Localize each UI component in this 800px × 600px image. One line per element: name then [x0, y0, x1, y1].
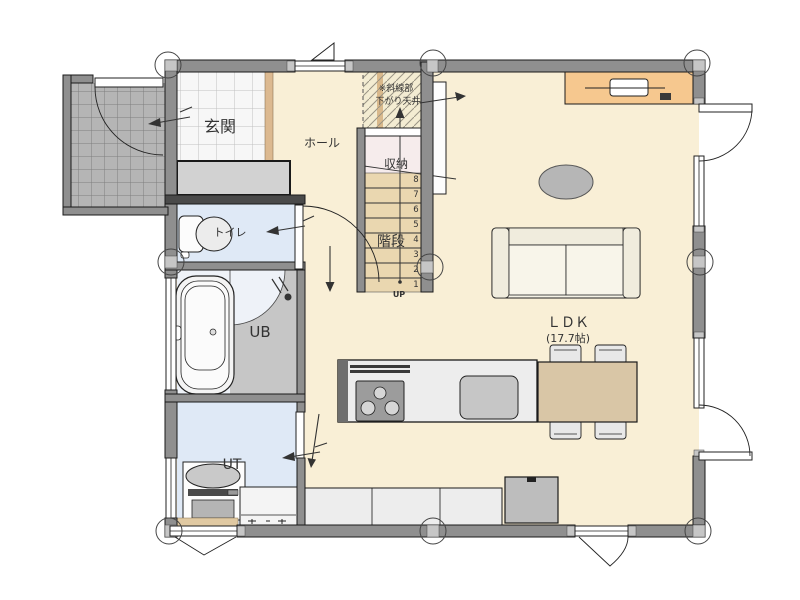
wall-stairs-left	[357, 128, 365, 292]
door-right-lower-leaf	[699, 452, 752, 460]
counter-basin	[610, 79, 648, 96]
room-label-utility: UT	[223, 457, 242, 473]
agarikamachi-step	[265, 72, 273, 162]
floor-plan-drawing: 玄関 ホール トイレ UB UT 階段 収納 ＬＤＫ (17.7帖) ※斜線部 …	[0, 0, 800, 600]
porch-tile-grid	[71, 83, 167, 207]
sofa-cushion	[509, 245, 566, 295]
room-label-stairs: 階段	[377, 234, 405, 250]
wall-top-right	[345, 60, 705, 72]
room-label-bathroom: UB	[249, 323, 270, 341]
room-label-hall: ホール	[304, 136, 340, 150]
chair	[595, 345, 626, 364]
wall-toilet-bath	[165, 262, 305, 270]
wall-left-1	[165, 60, 177, 278]
bathtub-drain	[210, 329, 216, 335]
dining-table	[538, 362, 637, 422]
note-lowered-ceiling-1: ※斜線部	[379, 82, 414, 94]
wall-bath-utility	[165, 394, 305, 402]
wall-top-left	[165, 60, 295, 72]
note-lowered-ceiling-2: 下がり天井	[375, 95, 420, 107]
wall-right-2	[693, 226, 705, 338]
kitchen-counter-end-panel	[338, 360, 348, 422]
equipment-box	[505, 477, 558, 523]
sofa-arm-left	[492, 228, 509, 298]
bottom-cabinets	[305, 488, 502, 525]
stair-step-number: 6	[413, 205, 418, 215]
room-label-ldk: ＬＤＫ	[547, 315, 589, 331]
porch-wall-bottom	[63, 207, 168, 215]
chair	[550, 420, 581, 439]
window-utility-casement-mark	[175, 537, 236, 555]
wall-utility-right-2	[297, 458, 305, 525]
wall-bottom-2	[237, 525, 575, 537]
kitchen-counter	[338, 360, 537, 422]
chair	[550, 345, 581, 364]
kitchen-rail-2	[350, 370, 410, 373]
utility-door-leaf	[296, 412, 304, 458]
sofa-arm-right	[623, 228, 640, 298]
stair-step-number: 8	[413, 175, 418, 185]
washing-machine	[240, 487, 297, 527]
sofa-back	[509, 228, 623, 245]
stairs-up-label: UP	[393, 290, 405, 299]
stair-up-start-dot	[398, 280, 402, 284]
toilet-door-leaf	[295, 205, 303, 269]
sofa	[492, 228, 640, 298]
door-right-upper-swing	[699, 108, 752, 161]
porch-wall-left	[63, 75, 71, 215]
window-top-casement-mark	[312, 43, 334, 60]
door-right-upper-leaf	[699, 104, 752, 112]
stair-step-number: 3	[413, 250, 418, 260]
stair-step-number: 4	[413, 235, 418, 245]
stove	[356, 381, 404, 421]
corner-sink-counter	[565, 72, 693, 104]
wall-stairs-right	[421, 62, 433, 292]
stair-step-number: 7	[413, 190, 418, 200]
door-right-lower-swing	[699, 405, 750, 456]
stair-step-number: 1	[413, 280, 418, 290]
kitchen-sink	[460, 376, 518, 419]
shoe-cabinet	[177, 161, 290, 195]
wall-genkan-toilet	[165, 195, 305, 204]
entrance-door-leaf	[95, 78, 163, 87]
wall-bath-right	[297, 270, 305, 394]
window-ldk-swing-mark	[579, 537, 628, 566]
bathtub	[174, 276, 234, 394]
counter-faucet	[660, 93, 671, 100]
room-label-genkan: 玄関	[204, 117, 236, 136]
wall-utility-right-1	[297, 402, 305, 412]
stair-step-number: 2	[413, 265, 418, 275]
vanity-cabinet	[192, 500, 234, 518]
floor-plan: 玄関 ホール トイレ UB UT 階段 収納 ＬＤＫ (17.7帖) ※斜線部 …	[0, 0, 800, 600]
sofa-cushion	[566, 245, 623, 295]
kitchen-rail-1	[350, 365, 410, 368]
room-label-ldk-size: (17.7帖)	[546, 332, 590, 345]
room-label-storage: 収納	[384, 157, 408, 171]
room-label-toilet: トイレ	[214, 226, 247, 239]
chair	[595, 420, 626, 439]
storage-sliding-door	[365, 128, 421, 136]
area-rug	[539, 165, 593, 199]
stair-step-number: 5	[413, 220, 418, 230]
